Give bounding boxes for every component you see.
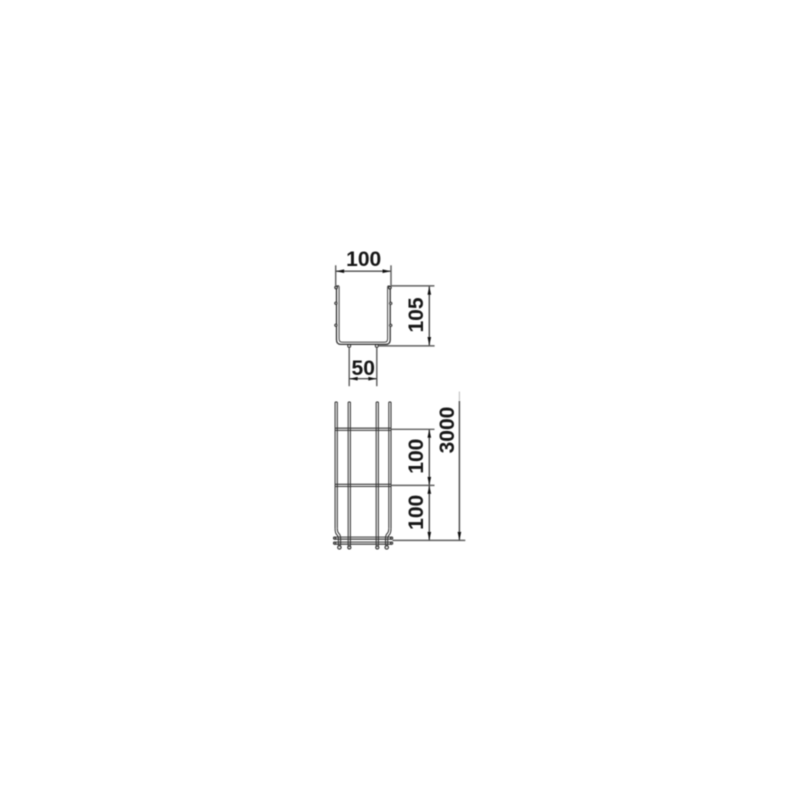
svg-text:3000: 3000: [436, 407, 459, 454]
svg-text:100: 100: [405, 439, 428, 474]
svg-text:105: 105: [405, 297, 428, 332]
svg-text:50: 50: [352, 357, 375, 380]
svg-text:100: 100: [405, 495, 428, 530]
svg-text:100: 100: [346, 248, 381, 271]
